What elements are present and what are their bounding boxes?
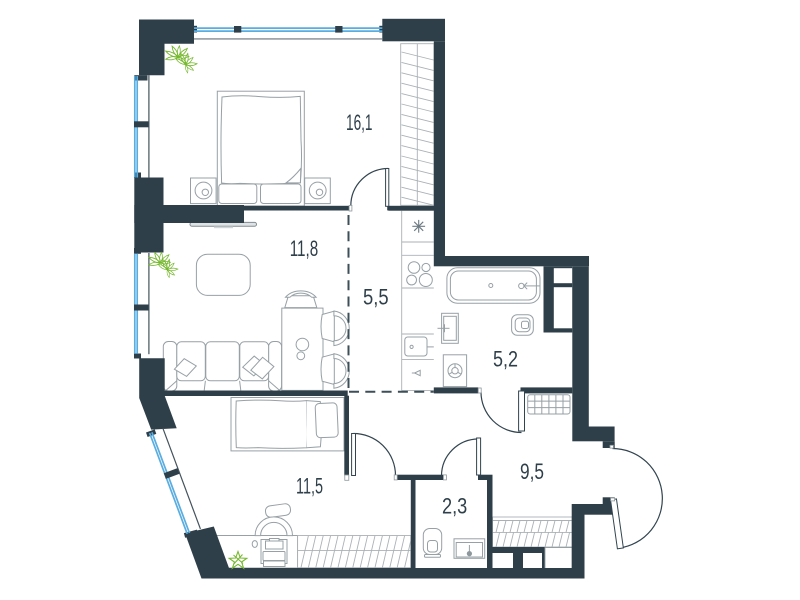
svg-text:5,2: 5,2 <box>493 347 518 372</box>
svg-text:5,5: 5,5 <box>363 285 389 310</box>
svg-text:9,5: 9,5 <box>520 459 544 484</box>
svg-text:11,8: 11,8 <box>290 236 319 261</box>
svg-text:11,5: 11,5 <box>296 474 323 499</box>
svg-text:16,1: 16,1 <box>346 110 373 135</box>
svg-text:2,3: 2,3 <box>442 493 467 518</box>
